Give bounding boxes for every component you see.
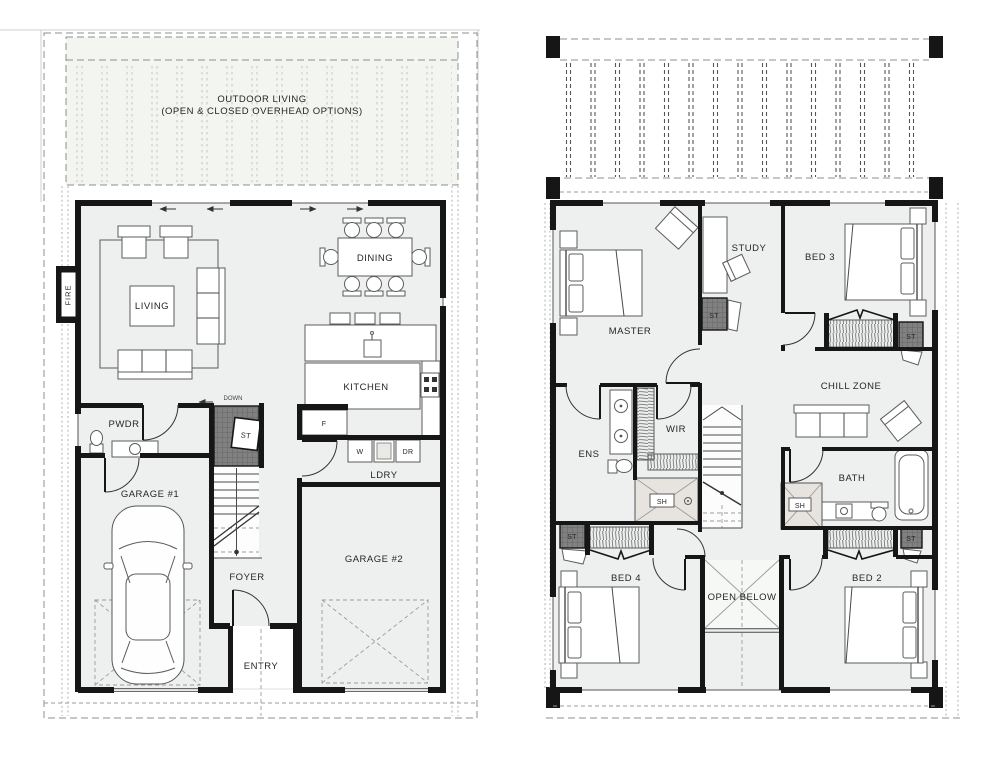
entry-porch bbox=[233, 626, 293, 688]
powder-toilet bbox=[90, 431, 103, 454]
living-label: LIVING bbox=[135, 301, 169, 312]
car bbox=[104, 506, 192, 684]
cooktop bbox=[421, 373, 439, 397]
rafter-pattern bbox=[560, 63, 932, 177]
fireplace-label: FIRE bbox=[64, 284, 73, 305]
laundry-label: LDRY bbox=[370, 470, 397, 481]
study-desk bbox=[703, 217, 727, 293]
chill-sofa bbox=[794, 405, 869, 437]
roof-rafters-area bbox=[546, 39, 943, 192]
bedside-table bbox=[560, 318, 577, 335]
first-floor-plan: MASTER STUDY ST BED 3 bbox=[545, 36, 960, 718]
bedside-table bbox=[910, 300, 926, 316]
living-sofa-bottom bbox=[118, 350, 192, 379]
bath-label: BATH bbox=[839, 473, 866, 484]
outdoor-living-label-2: (OPEN & CLOSED OVERHEAD OPTIONS) bbox=[161, 106, 362, 117]
dining-label: DINING bbox=[357, 253, 393, 264]
ens-toilet bbox=[608, 460, 632, 474]
ground-floor-plan: OUTDOOR LIVING (OPEN & CLOSED OVERHEAD O… bbox=[0, 30, 480, 718]
powder-label: PWDR bbox=[108, 419, 139, 430]
ens-shower-label: SH bbox=[657, 499, 667, 506]
study-storage-label: ST bbox=[709, 313, 719, 320]
washer-label: W bbox=[357, 449, 364, 456]
fireplace: FIRE bbox=[56, 266, 81, 323]
floor-plan-page: OUTDOOR LIVING (OPEN & CLOSED OVERHEAD O… bbox=[0, 0, 989, 758]
bed4-storage-label: ST bbox=[567, 534, 577, 541]
outdoor-living-label-1: OUTDOOR LIVING bbox=[217, 94, 306, 105]
study-label: STUDY bbox=[732, 243, 767, 254]
chill-zone-label: CHILL ZONE bbox=[821, 381, 882, 392]
wir-rail-vertical bbox=[637, 388, 654, 460]
storage-label-ground: ST bbox=[240, 430, 251, 440]
master-bed bbox=[560, 250, 642, 316]
bedside-table bbox=[911, 571, 927, 587]
wir-rail-horizontal bbox=[648, 454, 698, 470]
outdoor-living-area: OUTDOOR LIVING (OPEN & CLOSED OVERHEAD O… bbox=[66, 37, 458, 185]
dryer-label: DR bbox=[403, 449, 414, 456]
kitchen-label: KITCHEN bbox=[343, 382, 388, 393]
bath-shower-label: SH bbox=[795, 503, 805, 510]
fridge-label: F bbox=[322, 421, 327, 428]
bath-shower: SH bbox=[781, 483, 822, 529]
stair-down-label: DOWN bbox=[224, 396, 243, 402]
wir-label: WIR bbox=[666, 424, 686, 435]
open-below-label: OPEN BELOW bbox=[708, 592, 777, 603]
bed3-bed bbox=[845, 224, 922, 300]
living-sofa-right bbox=[197, 268, 225, 344]
bed3-label: BED 3 bbox=[805, 252, 835, 263]
ens-vanity bbox=[610, 390, 632, 454]
bedside-table bbox=[911, 662, 927, 678]
bedside-table bbox=[910, 208, 926, 224]
bed2-bed bbox=[845, 587, 923, 663]
bedside-table bbox=[561, 571, 577, 587]
laundry-tub bbox=[374, 440, 394, 462]
bed4-bed bbox=[559, 587, 639, 663]
bathtub bbox=[895, 450, 928, 520]
garage2-label: GARAGE #2 bbox=[345, 554, 403, 565]
ens-shower: SH bbox=[635, 478, 698, 522]
island-stool bbox=[380, 313, 400, 324]
kitchen-island bbox=[305, 325, 436, 361]
island-stool bbox=[355, 313, 375, 324]
bedside-table bbox=[560, 231, 577, 248]
ens-label: ENS bbox=[578, 449, 599, 460]
bedside-table bbox=[561, 662, 577, 678]
living-armchair-2 bbox=[160, 226, 192, 258]
kitchen-side-bench bbox=[422, 361, 440, 437]
garage1-label: GARAGE #1 bbox=[121, 489, 179, 500]
bed2-label: BED 2 bbox=[852, 573, 882, 584]
bed4-label: BED 4 bbox=[611, 573, 641, 584]
bath-vanity bbox=[822, 502, 877, 520]
deck-pattern bbox=[72, 64, 452, 182]
master-label: MASTER bbox=[609, 326, 652, 337]
bed2-storage-label: ST bbox=[906, 536, 916, 543]
foyer-label: FOYER bbox=[229, 572, 264, 583]
bed3-storage-label: ST bbox=[906, 334, 916, 341]
floor-plan-canvas: OUTDOOR LIVING (OPEN & CLOSED OVERHEAD O… bbox=[0, 0, 989, 758]
living-armchair-1 bbox=[118, 226, 150, 258]
island-stool bbox=[330, 313, 350, 324]
